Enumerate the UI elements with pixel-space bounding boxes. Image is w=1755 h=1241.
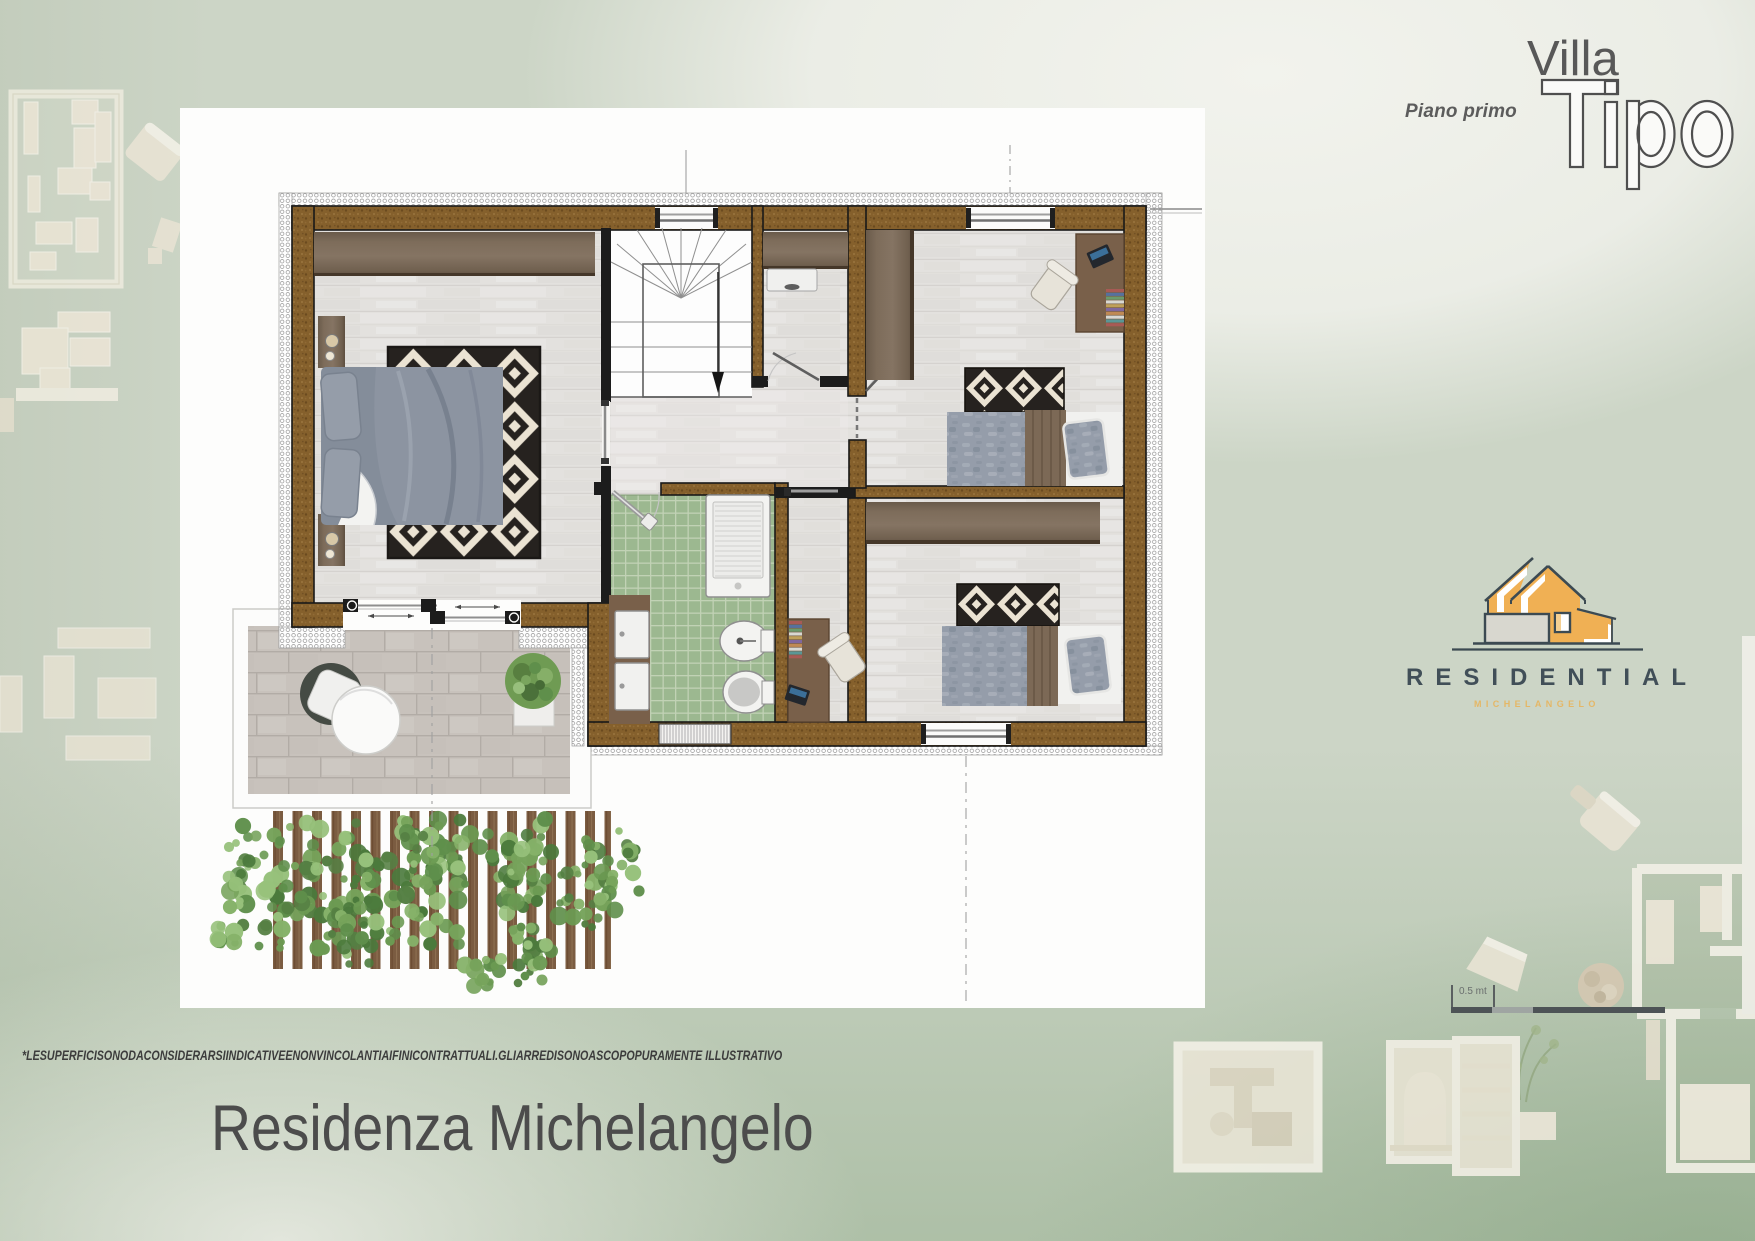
svg-text:Villa: Villa <box>1527 32 1619 86</box>
